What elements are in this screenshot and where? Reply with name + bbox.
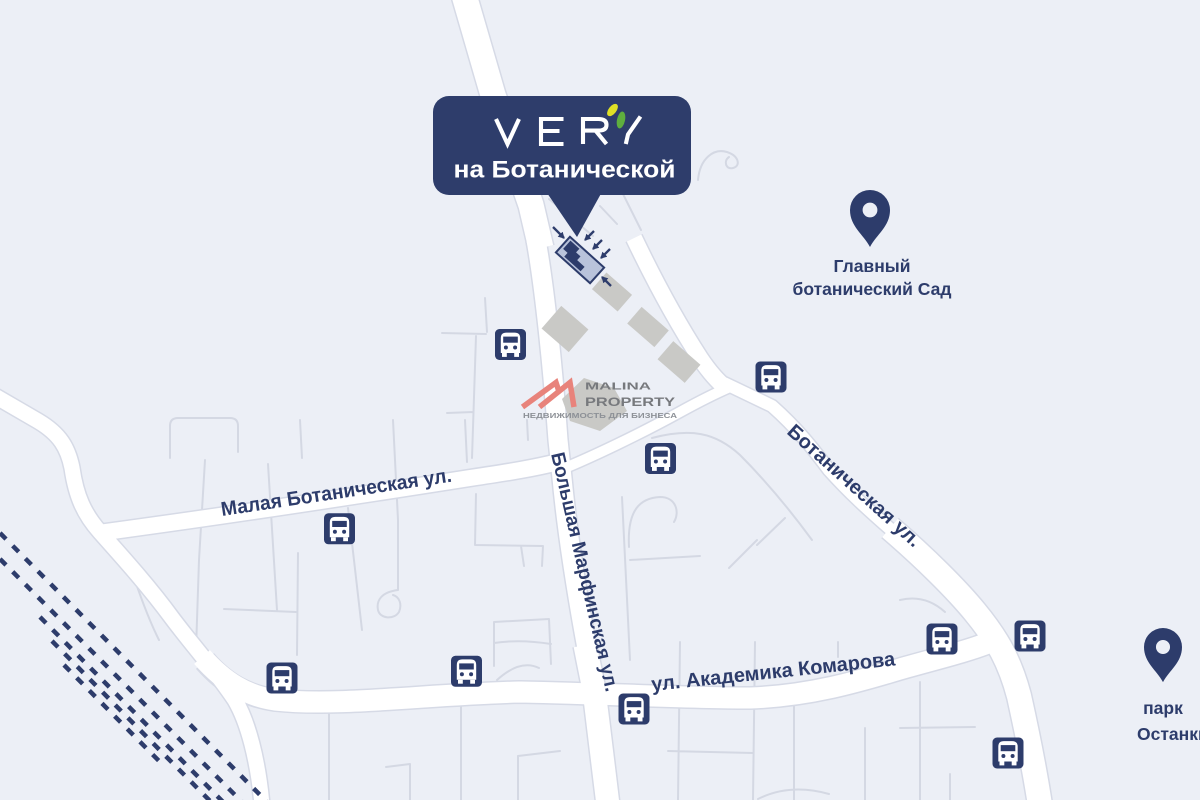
svg-text:парк: парк <box>1143 698 1183 718</box>
svg-text:PROPERTY: PROPERTY <box>585 397 675 409</box>
svg-text:Останкино: Останкино <box>1137 724 1200 744</box>
svg-text:Главный: Главный <box>834 256 911 276</box>
svg-text:НЕДВИЖИМОСТЬ ДЛЯ БИЗНЕСА: НЕДВИЖИМОСТЬ ДЛЯ БИЗНЕСА <box>523 411 677 420</box>
svg-text:MALINA: MALINA <box>585 381 652 393</box>
svg-text:ботанический Сад: ботанический Сад <box>793 279 952 299</box>
svg-text:на Ботанической: на Ботанической <box>454 157 676 184</box>
